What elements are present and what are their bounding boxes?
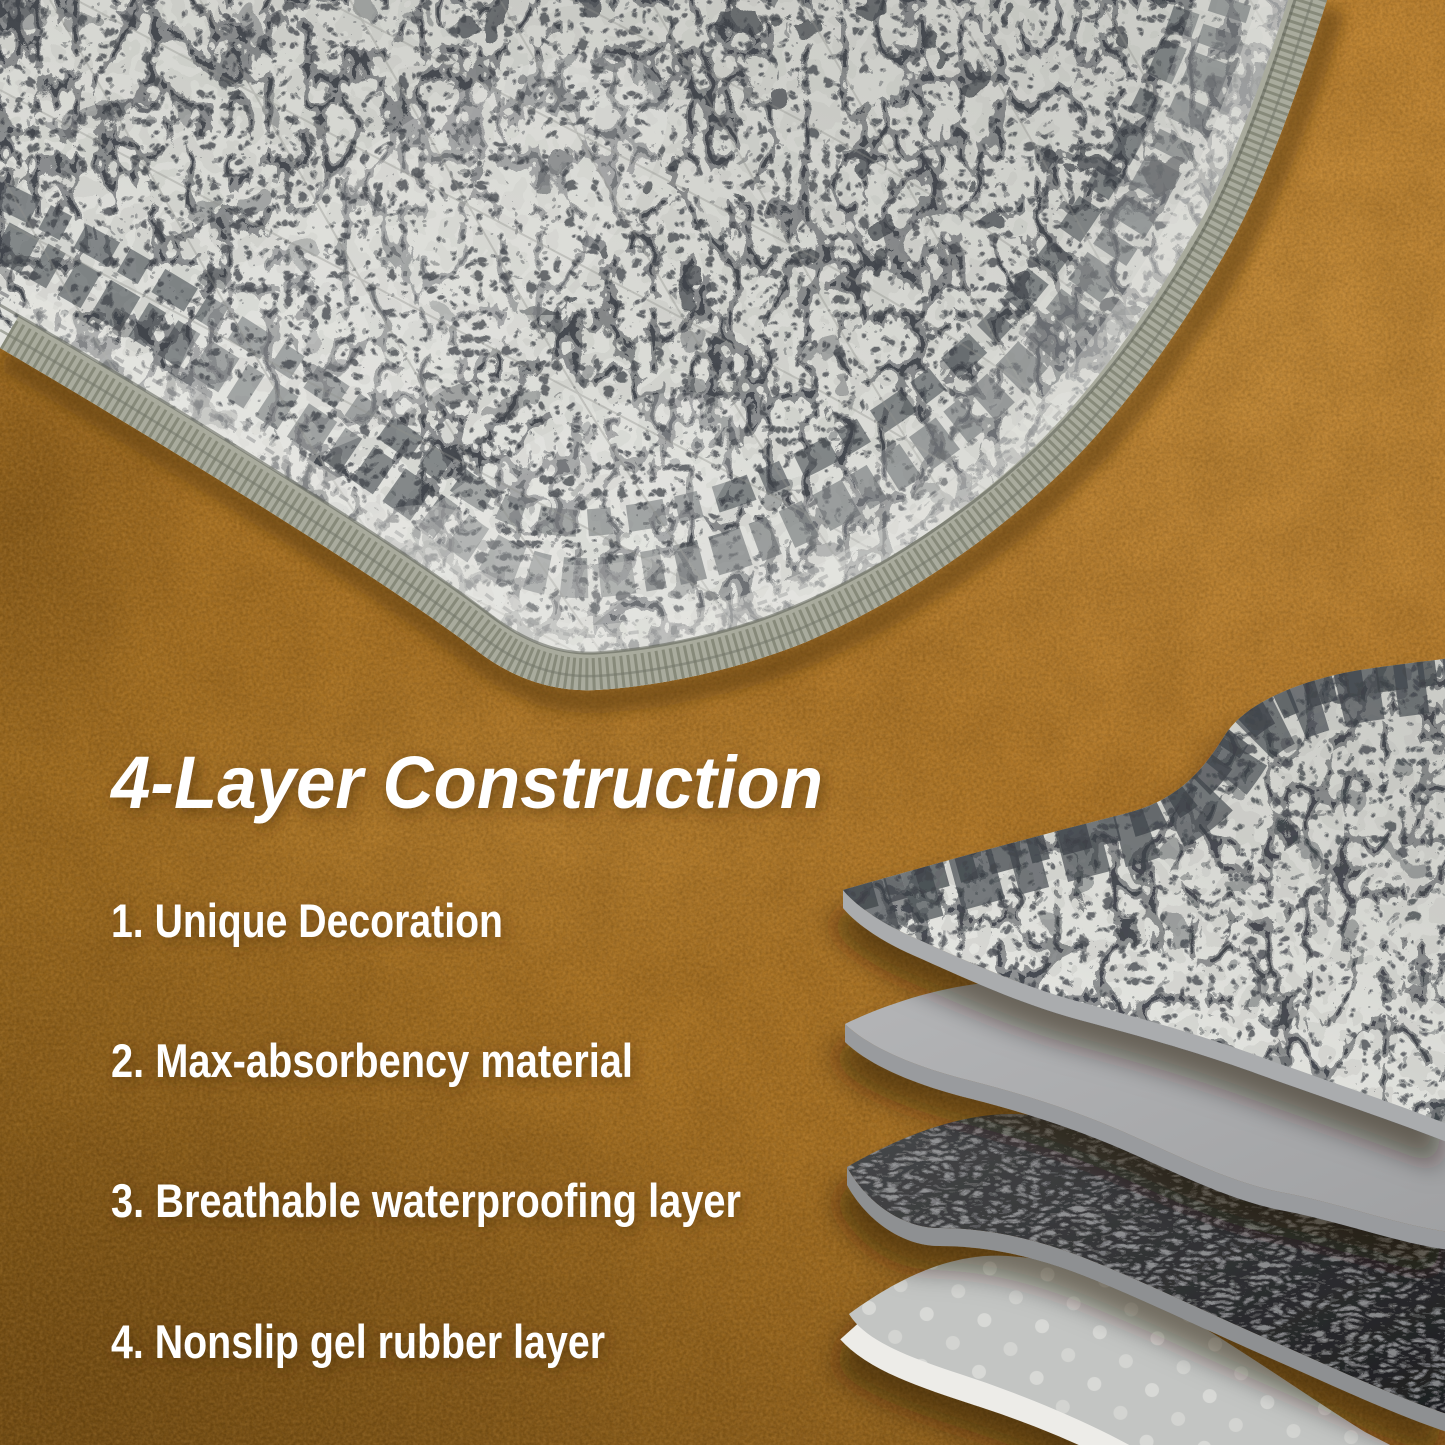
svg-text:3. Breathable waterproofing la: 3. Breathable waterproofing layer	[111, 1174, 741, 1227]
svg-text:1. Unique Decoration: 1. Unique Decoration	[111, 894, 503, 947]
svg-text:4-Layer Construction: 4-Layer Construction	[109, 741, 823, 824]
svg-text:2. Max-absorbency material: 2. Max-absorbency material	[111, 1034, 633, 1087]
svg-text:4. Nonslip gel rubber layer: 4. Nonslip gel rubber layer	[111, 1315, 605, 1368]
